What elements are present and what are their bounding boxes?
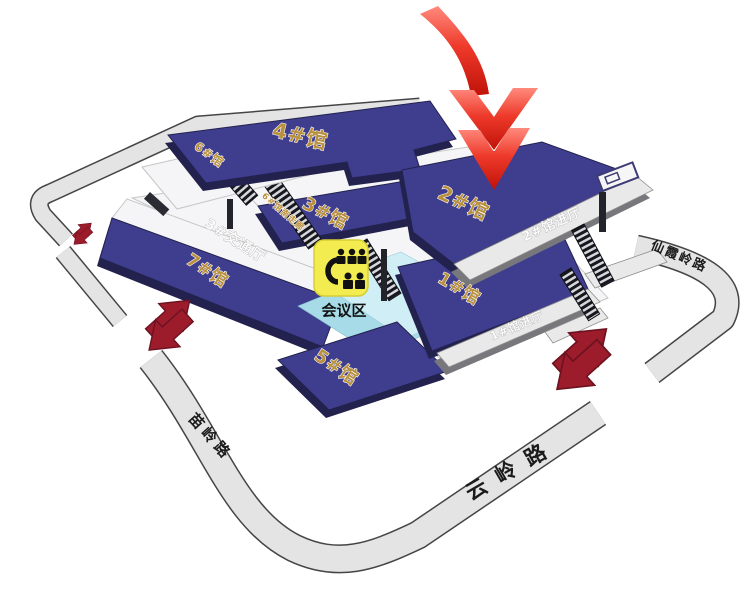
conference-icon (314, 240, 368, 296)
facility-map-canvas: 4#馆 2#馆 3#馆 1#馆 5#馆 7#馆 6#馆 6#馆南走廊 3#交通厅… (0, 0, 750, 615)
big-red-arrow-shaft (420, 6, 489, 96)
big-red-arrow-chevron-1 (449, 88, 538, 150)
conference-area-label: 会议区 (321, 302, 366, 320)
support-pillar-left (227, 199, 233, 229)
support-pillar-east (599, 192, 606, 232)
support-pillar-center (381, 249, 387, 301)
exhibition-center-map: 4#馆 2#馆 3#馆 1#馆 5#馆 7#馆 6#馆 6#馆南走廊 3#交通厅… (0, 0, 750, 615)
road-yunling-label: 云岭路 (461, 433, 561, 505)
gate-arrows-northwest (69, 217, 97, 250)
